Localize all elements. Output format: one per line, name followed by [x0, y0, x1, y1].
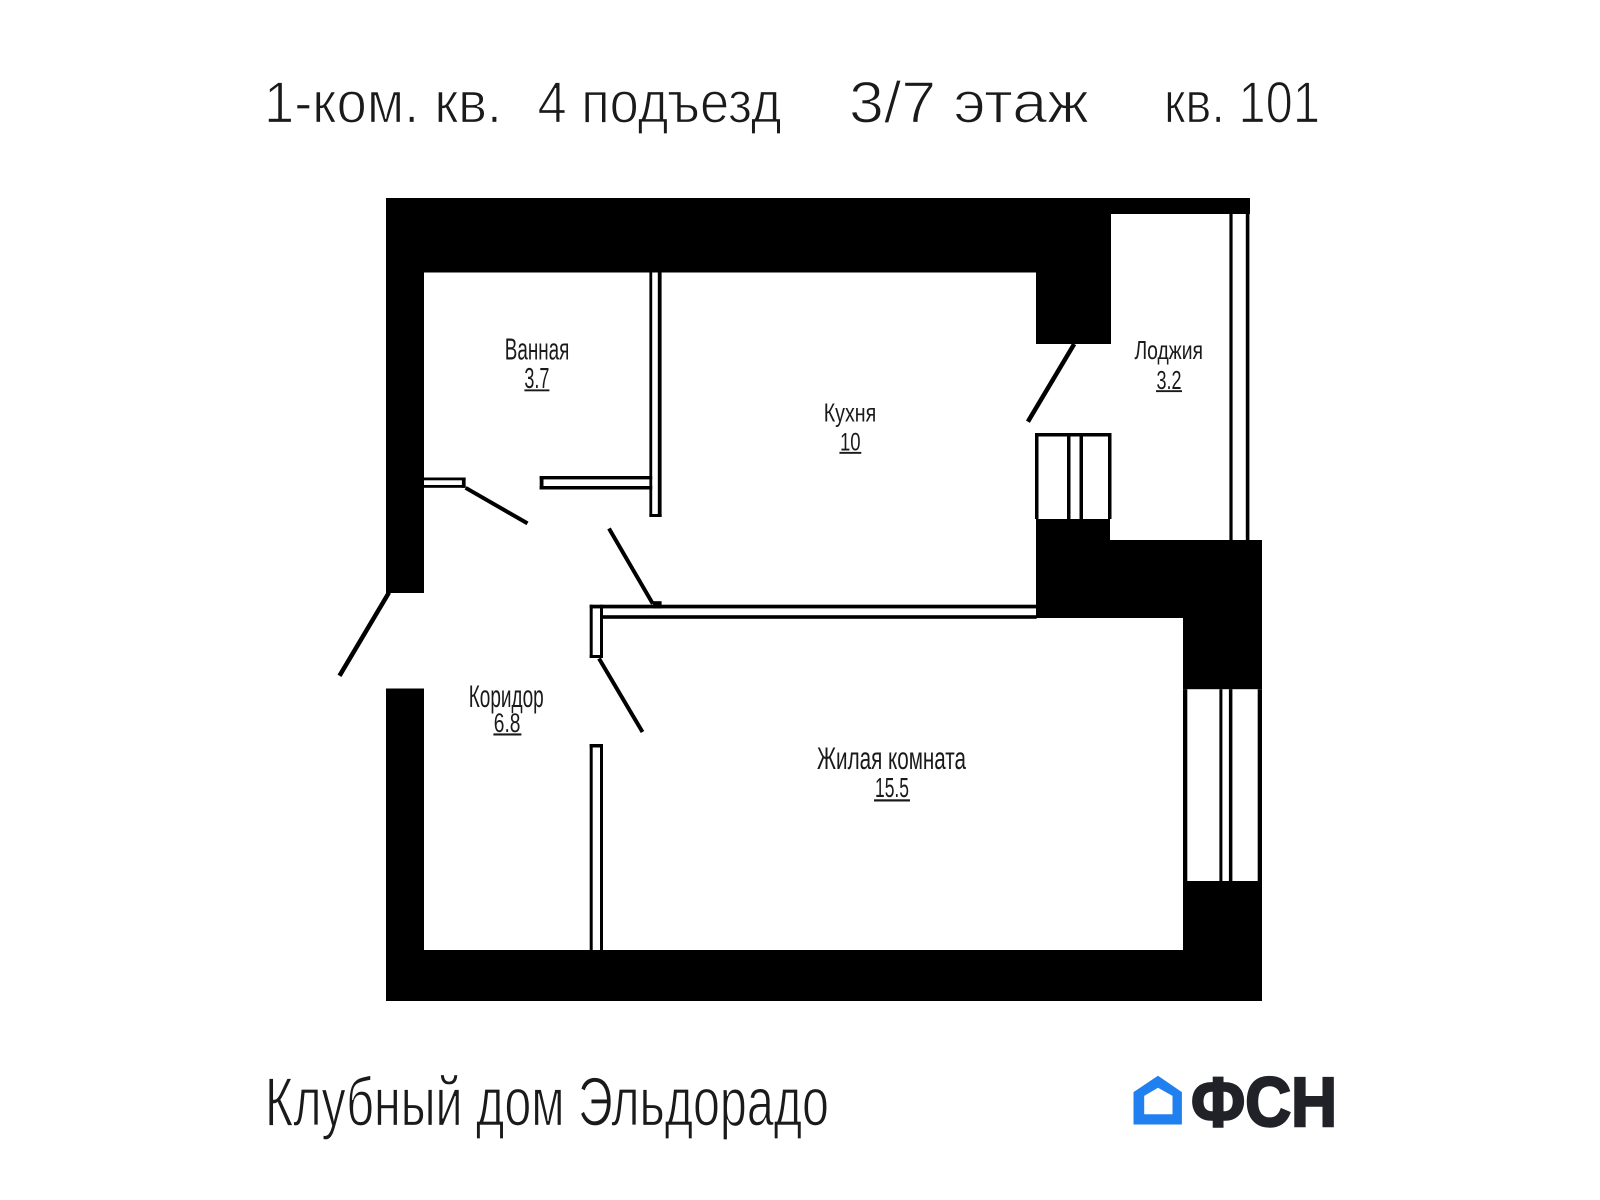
svg-text:4 подъезд: 4 подъезд: [538, 71, 782, 136]
svg-text:Кухня: Кухня: [824, 398, 877, 428]
svg-text:Клубный дом Эльдорадо: Клубный дом Эльдорадо: [265, 1064, 829, 1141]
svg-text:1-ком. кв.: 1-ком. кв.: [264, 71, 502, 136]
svg-text:15.5: 15.5: [875, 772, 909, 803]
svg-text:кв. 101: кв. 101: [1164, 71, 1320, 136]
svg-text:Лоджия: Лоджия: [1135, 335, 1204, 365]
svg-text:Жилая комната: Жилая комната: [817, 740, 966, 776]
svg-text:Ванная: Ванная: [505, 332, 570, 367]
svg-text:ФСН: ФСН: [1191, 1063, 1337, 1141]
svg-text:3/7 этаж: 3/7 этаж: [849, 71, 1089, 136]
